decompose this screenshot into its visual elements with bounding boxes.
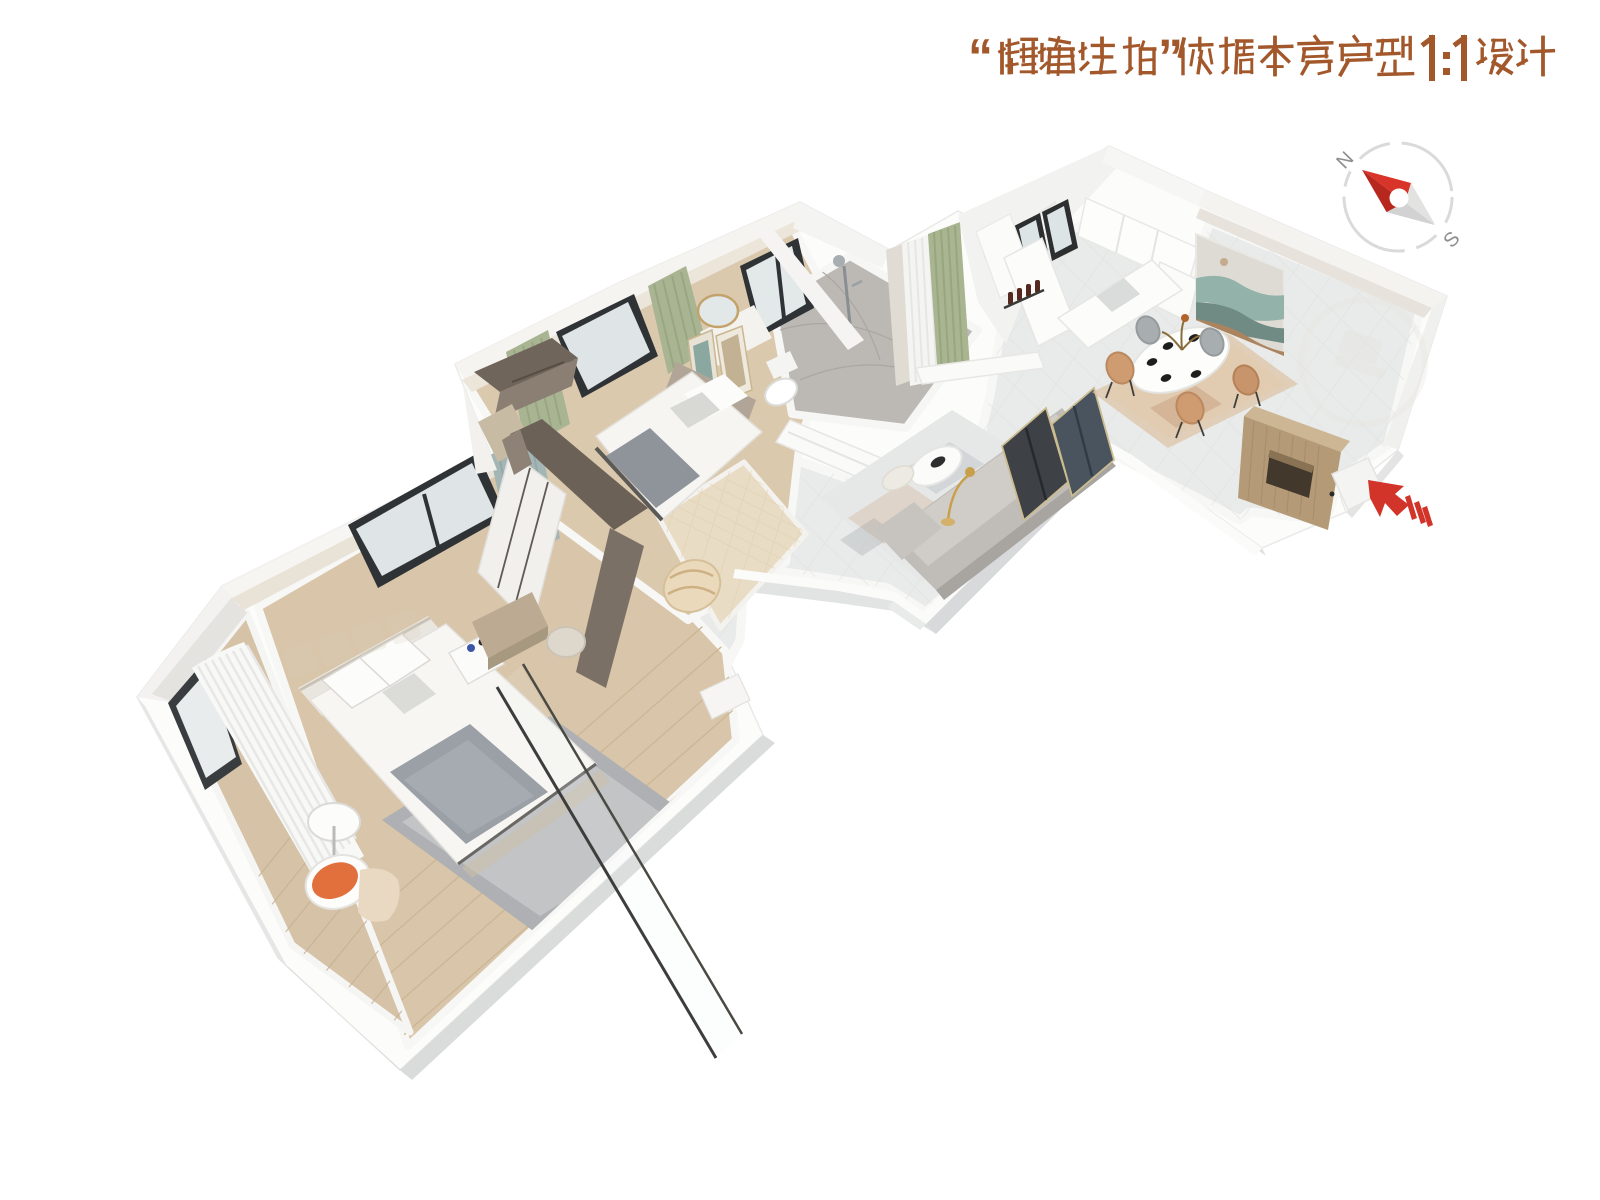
svg-text:“: “ (968, 29, 993, 85)
